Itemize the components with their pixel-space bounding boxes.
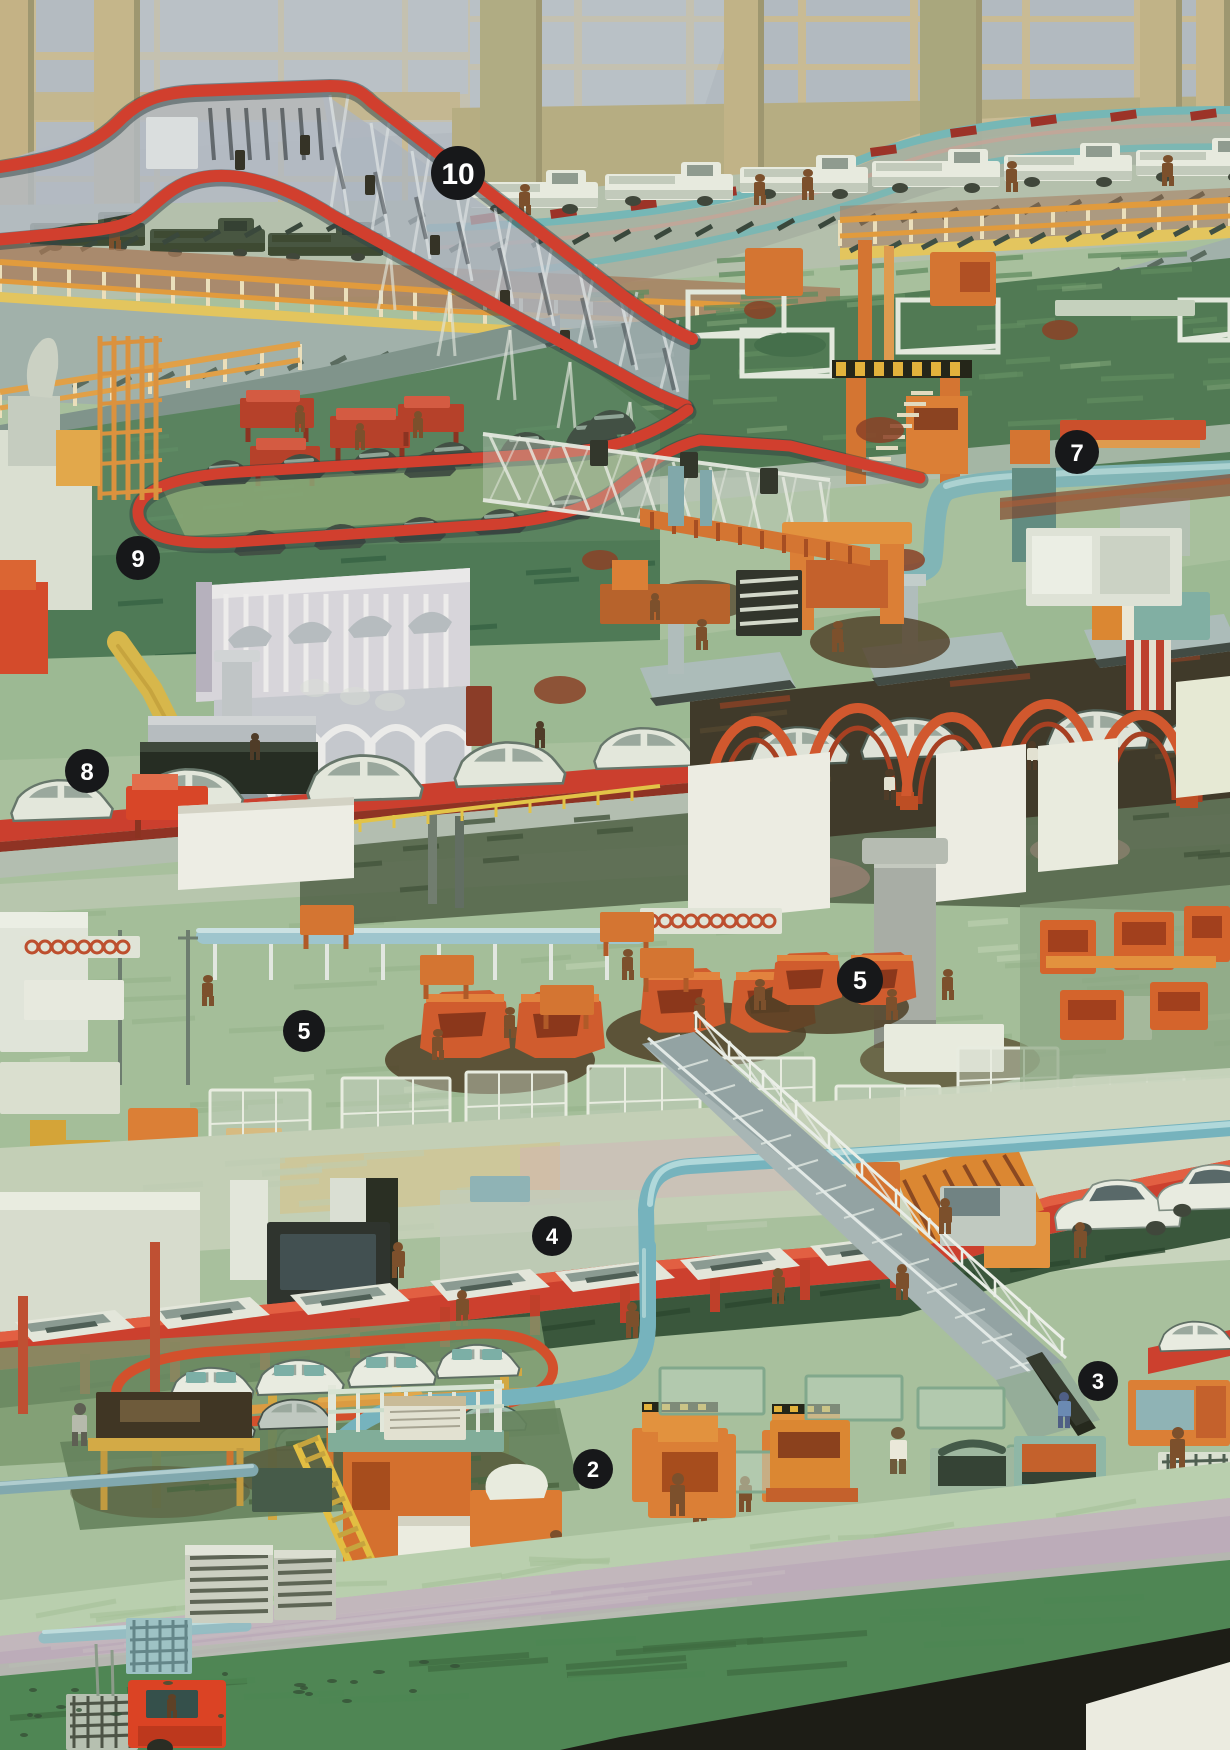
svg-text:10: 10 bbox=[441, 158, 474, 191]
svg-text:8: 8 bbox=[80, 759, 93, 786]
svg-text:5: 5 bbox=[853, 967, 867, 995]
svg-text:5: 5 bbox=[298, 1018, 311, 1044]
svg-text:7: 7 bbox=[1070, 440, 1083, 467]
svg-text:2: 2 bbox=[587, 1457, 599, 1482]
svg-text:3: 3 bbox=[1092, 1369, 1104, 1394]
svg-text:4: 4 bbox=[546, 1224, 559, 1249]
svg-text:9: 9 bbox=[131, 546, 144, 573]
